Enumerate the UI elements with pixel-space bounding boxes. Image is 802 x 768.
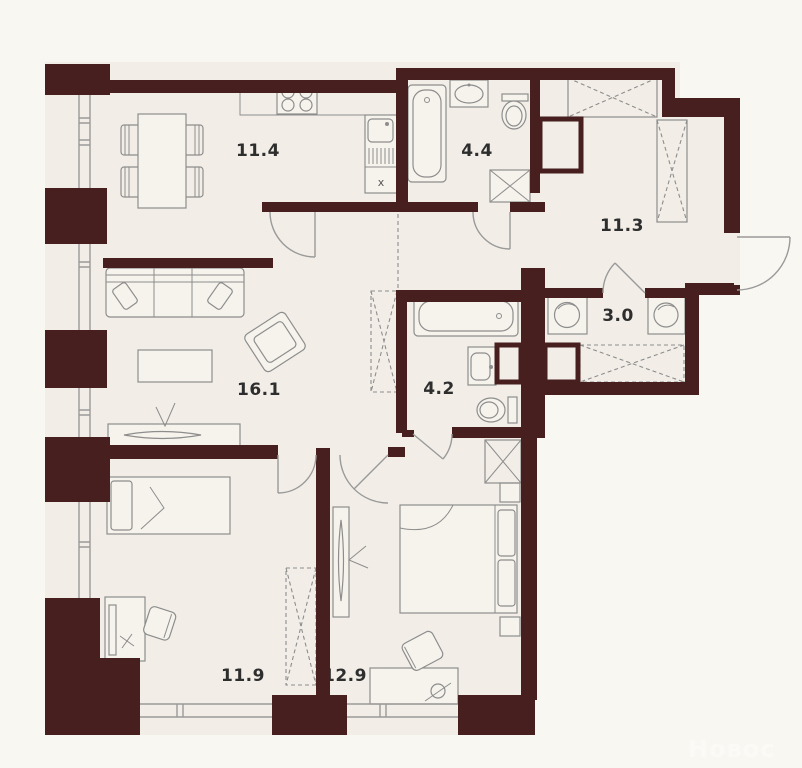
room-label-bedroom-one: 11.9 [221, 666, 265, 686]
room-label-living: 16.1 [237, 380, 281, 400]
nightstand-icon [500, 483, 520, 502]
wall-segment [103, 258, 273, 268]
door-entrance [737, 237, 790, 290]
room-label-bathroom-small: 4.4 [461, 141, 493, 161]
double-bed-icon [400, 505, 517, 613]
wall-segment [724, 117, 740, 233]
wall-segment [545, 288, 603, 298]
wall-segment [521, 268, 545, 438]
watermark: Новос [688, 735, 775, 763]
wall-segment [100, 658, 140, 735]
desk-icon [370, 668, 458, 704]
room-label-laundry: 3.0 [602, 306, 634, 326]
coffee-table-icon [138, 350, 212, 382]
wall-segment [45, 330, 107, 388]
wall-segment [272, 695, 347, 735]
wall-segment [402, 430, 414, 437]
wall-segment [396, 290, 407, 433]
toilet-icon [502, 94, 528, 129]
wall-segment [396, 290, 521, 302]
kitchen-sink-icon: x [365, 115, 397, 193]
wall-segment [510, 202, 545, 212]
room-label-kitchen: 11.4 [236, 141, 280, 161]
wall-segment [45, 188, 107, 244]
washing-machine-icon [648, 296, 685, 334]
bathtub-icon [408, 85, 446, 182]
wall-segment [396, 68, 408, 212]
wall-segment [262, 202, 478, 212]
wall-segment [521, 430, 537, 700]
room-label-hallway: 11.3 [600, 216, 644, 236]
toilet-icon [477, 397, 517, 423]
wall-segment [662, 98, 740, 117]
wall-segment [45, 445, 278, 459]
wall-segment [100, 80, 402, 93]
shower-box-icon [490, 170, 530, 202]
desk-icon [105, 597, 145, 661]
wall-segment [388, 447, 405, 457]
shaft-box [540, 119, 581, 171]
washbasin-icon [468, 347, 496, 385]
washing-machine-icon [548, 296, 587, 334]
shaft-box [545, 345, 578, 382]
wall-segment [458, 695, 535, 735]
wall-segment [45, 598, 100, 735]
room-label-bathroom-main: 4.2 [423, 379, 455, 399]
wall-segment [645, 288, 699, 298]
washbasin-icon [450, 80, 488, 107]
floor-plan: x 11.4 [0, 0, 802, 768]
wall-segment [396, 68, 673, 80]
single-bed-icon [107, 477, 230, 534]
wall-segment [685, 290, 699, 395]
wall-segment [452, 427, 521, 438]
wall-segment [316, 448, 330, 697]
nightstand-icon [500, 617, 520, 636]
wall-segment [662, 68, 675, 102]
sofa-icon [106, 268, 244, 317]
shaft-box [497, 345, 521, 382]
cabinet-mark: x [378, 176, 385, 189]
